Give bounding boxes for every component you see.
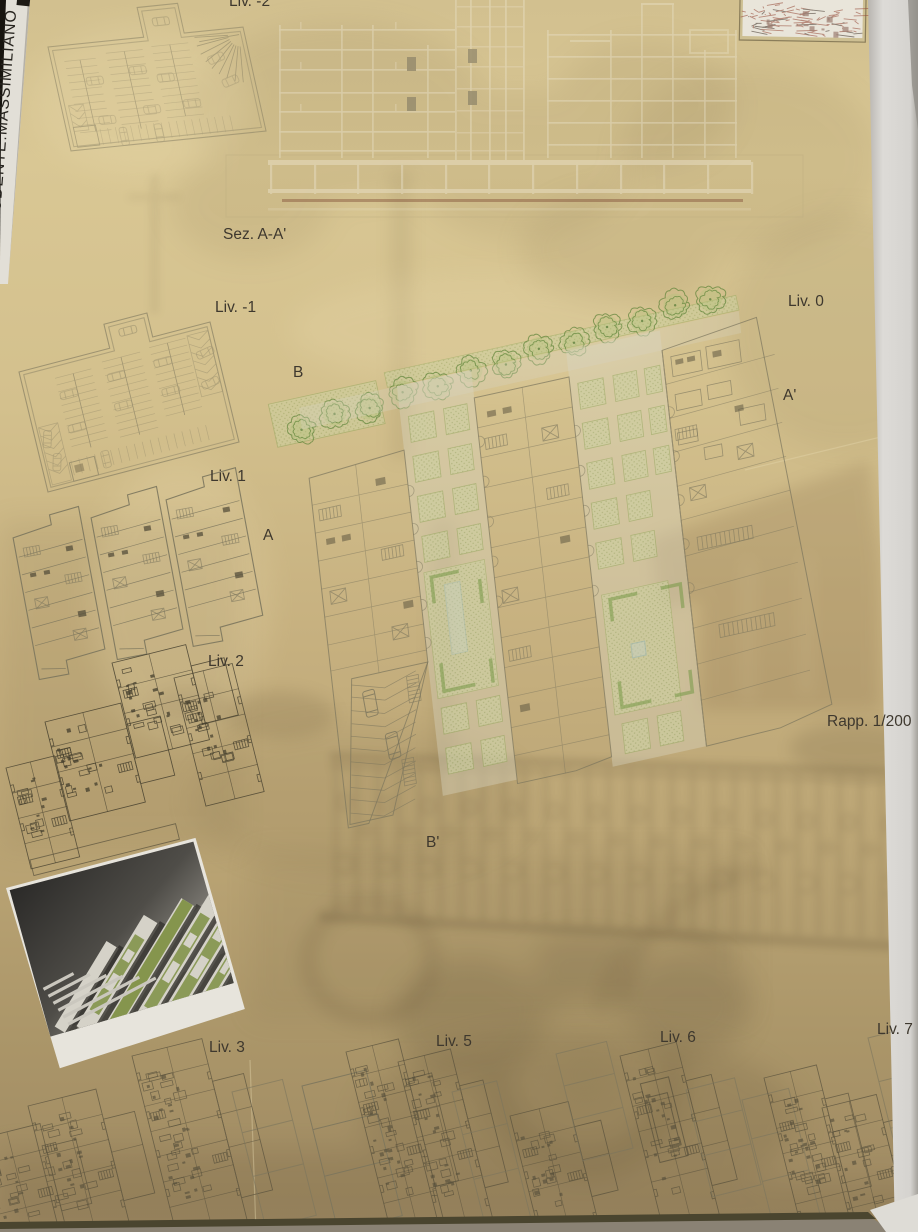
svg-text:Liv. -1: Liv. -1 bbox=[215, 299, 256, 316]
svg-text:Sez. A-A': Sez. A-A' bbox=[223, 226, 286, 243]
svg-text:Liv. 7: Liv. 7 bbox=[877, 1021, 913, 1038]
svg-text:Liv. 1: Liv. 1 bbox=[210, 468, 246, 485]
svg-text:Liv. 6: Liv. 6 bbox=[660, 1029, 696, 1046]
svg-text:B': B' bbox=[426, 834, 439, 851]
svg-text:Liv. -2: Liv. -2 bbox=[229, 0, 270, 10]
svg-text:Rapp. 1/200: Rapp. 1/200 bbox=[827, 713, 912, 730]
svg-text:Liv. 3: Liv. 3 bbox=[209, 1039, 245, 1056]
svg-text:Liv. 0: Liv. 0 bbox=[788, 293, 824, 310]
svg-text:Liv. 5: Liv. 5 bbox=[436, 1033, 472, 1050]
svg-text:A: A bbox=[263, 527, 274, 544]
svg-text:A': A' bbox=[783, 387, 796, 404]
svg-text:B: B bbox=[293, 364, 303, 381]
svg-text:Liv. 2: Liv. 2 bbox=[208, 653, 244, 670]
